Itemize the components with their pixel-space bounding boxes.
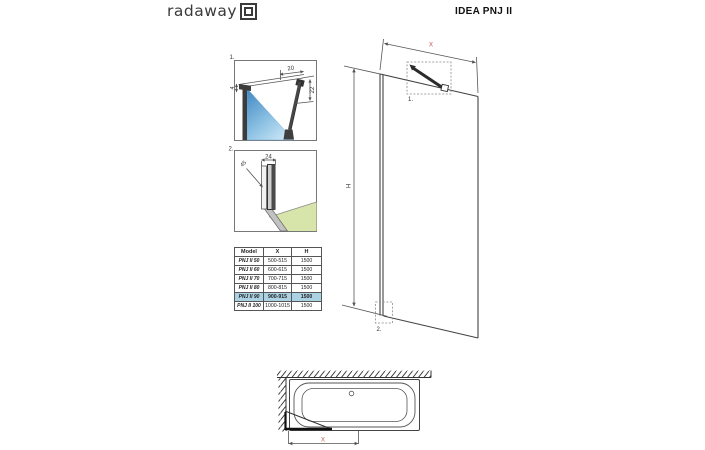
col-header-x: X (264, 248, 292, 257)
size-table: Model X H PNJ II 50 500-515 1500 PNJ II … (234, 247, 322, 311)
tub-floor (302, 389, 407, 422)
brand-logo-square-icon (240, 3, 257, 20)
table-row[interactable]: PNJ II 100 1000-1015 1500 (235, 302, 322, 311)
support-bar (410, 65, 449, 92)
svg-text:4: 4 (230, 86, 236, 89)
size-table-header-row: Model X H (235, 248, 322, 257)
bathtub (290, 380, 420, 431)
col-header-model: Model (235, 248, 264, 257)
glass-panel (380, 74, 478, 338)
brand-logo: radaway (167, 2, 257, 20)
svg-text:H: H (347, 184, 353, 188)
brand-logo-text: radaway (167, 2, 237, 20)
main-panel-drawing: 1. 2. X H (338, 30, 506, 345)
bathtub-top-view: X (272, 362, 440, 448)
svg-text:1.: 1. (408, 97, 413, 103)
bottom-profile-section (262, 165, 276, 210)
dimension-x-bottom: X (289, 431, 359, 444)
table-row[interactable]: PNJ II 60 600-615 1500 (235, 266, 322, 275)
detail-drawing-1: 1. 4 20 22 (226, 50, 326, 145)
col-header-h: H (292, 248, 322, 257)
table-row[interactable]: PNJ II 80 800-815 1500 (235, 284, 322, 293)
wall-top (277, 371, 431, 378)
brand-logo-inner-square (244, 7, 253, 16)
wall-profile (380, 74, 383, 316)
svg-text:24: 24 (265, 155, 272, 161)
table-row[interactable]: PNJ II 50 500-515 1500 (235, 257, 322, 266)
table-row[interactable]: PNJ II 70 700-715 1500 (235, 275, 322, 284)
svg-text:2.: 2. (377, 327, 382, 333)
svg-text:X: X (321, 438, 325, 444)
table-row-highlighted[interactable]: PNJ II 90 900-915 1500 (235, 293, 322, 302)
detail-drawing-2: 2. 24 45 (224, 143, 324, 235)
detail2-label: 2. (229, 147, 234, 153)
svg-text:22: 22 (310, 86, 316, 93)
technical-sheet: radaway IDEA PNJ II 1. (0, 0, 705, 450)
drain (349, 391, 354, 396)
product-title: IDEA PNJ II (455, 6, 512, 17)
svg-text:X: X (429, 43, 433, 49)
